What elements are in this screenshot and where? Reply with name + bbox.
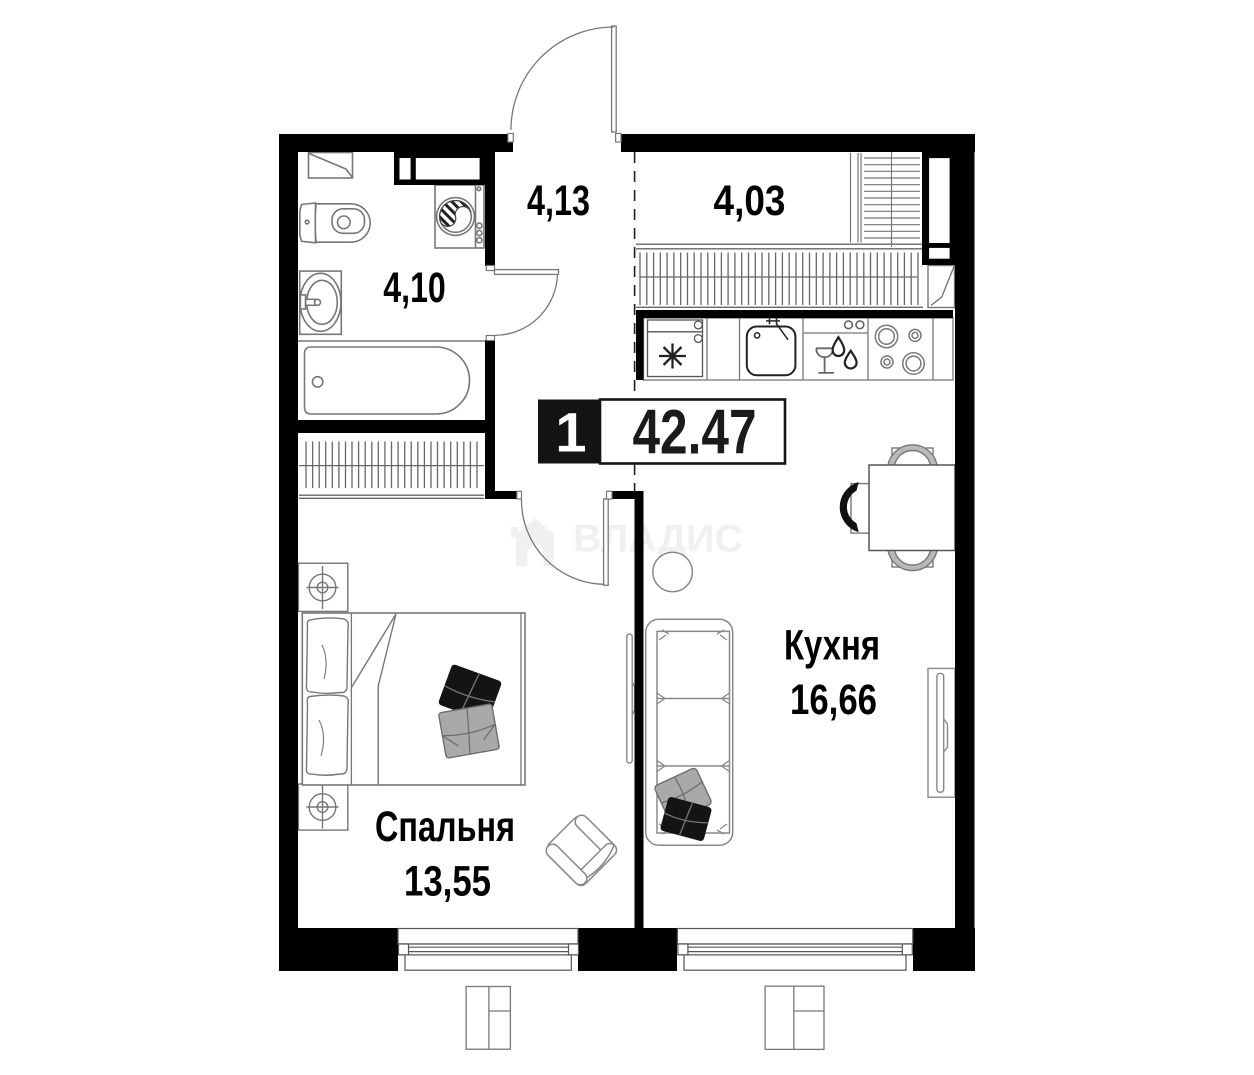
- svg-text:4,03: 4,03: [714, 177, 786, 225]
- svg-text:13,55: 13,55: [404, 858, 491, 906]
- svg-text:42.47: 42.47: [633, 398, 757, 468]
- svg-text:Кухня: Кухня: [784, 622, 880, 670]
- svg-text:4,10: 4,10: [383, 264, 446, 312]
- svg-text:1: 1: [555, 401, 586, 464]
- svg-text:ВЛАДИС: ВЛАДИС: [573, 518, 743, 561]
- svg-text:4,13: 4,13: [527, 177, 590, 225]
- svg-text:16,66: 16,66: [790, 676, 877, 724]
- svg-text:Спальня: Спальня: [375, 803, 515, 851]
